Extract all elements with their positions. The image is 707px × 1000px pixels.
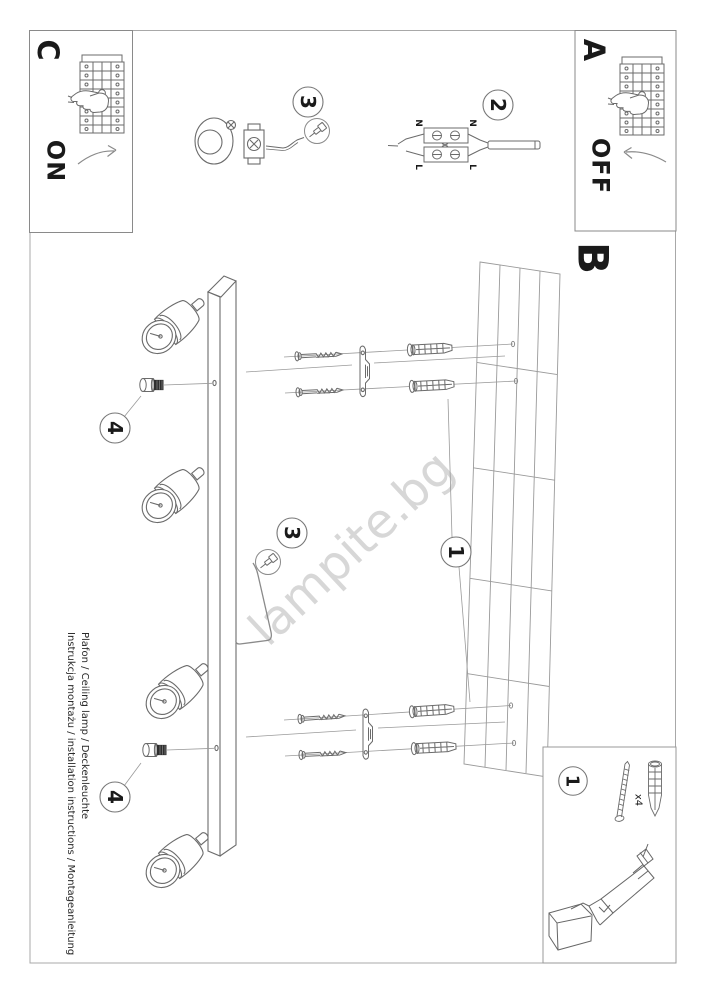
section-c-label: C bbox=[31, 39, 65, 60]
spotlight-drawing bbox=[139, 652, 218, 726]
step3-number: 3 bbox=[280, 526, 304, 540]
step1-number: 1 bbox=[562, 775, 583, 788]
mounting-bracket bbox=[363, 709, 373, 759]
section-c-box: C ON bbox=[30, 31, 133, 233]
power-off-label: OFF bbox=[587, 138, 615, 194]
spotlight-drawing bbox=[135, 287, 214, 361]
section-b-label: B bbox=[568, 242, 617, 274]
terminal-l-right: L bbox=[467, 164, 477, 170]
step1-number: 1 bbox=[444, 545, 468, 559]
step2-number: 2 bbox=[486, 98, 510, 112]
step4-number: 4 bbox=[103, 790, 127, 804]
lamp-bar-figure bbox=[208, 276, 236, 856]
hardware-qty-label: x4 bbox=[633, 794, 644, 806]
manual-drawing: lampite.bg C ON A OFF bbox=[0, 0, 707, 1000]
leader-line bbox=[164, 383, 212, 385]
screwdriver-icon bbox=[256, 550, 281, 575]
wall-plug bbox=[409, 378, 454, 392]
hardware-kit-box: 1 x4 bbox=[543, 747, 676, 963]
section-a-label: A bbox=[577, 39, 611, 62]
step3-clamp-figure bbox=[195, 118, 304, 164]
step2-wiring-figure bbox=[388, 128, 540, 162]
ceiling-panel-figure bbox=[464, 262, 560, 777]
hardware-leader-lines-top bbox=[246, 344, 516, 393]
leader-line bbox=[167, 748, 214, 750]
step4-number: 4 bbox=[103, 421, 127, 435]
footer-instructions-line: Instrukcja montażu / installation instru… bbox=[65, 632, 76, 955]
manual-page: lampite.bg C ON A OFF bbox=[0, 0, 707, 1000]
terminal-l-left: L bbox=[413, 164, 423, 170]
wall-plug bbox=[407, 342, 452, 356]
wall-plug bbox=[411, 740, 456, 754]
leader-line bbox=[124, 763, 141, 786]
footer-product-line: Plafon / Ceiling lamp / Deckenleuchte bbox=[79, 632, 90, 819]
spotlight-drawing bbox=[139, 821, 218, 895]
wall-plug bbox=[409, 703, 454, 718]
screw-cap bbox=[140, 379, 163, 392]
watermark: lampite.bg bbox=[238, 440, 465, 657]
power-on-label: ON bbox=[42, 140, 70, 183]
section-a-box: A OFF bbox=[575, 31, 676, 232]
step3-number: 3 bbox=[296, 95, 320, 109]
screw-cap bbox=[143, 744, 166, 757]
spotlight-drawing bbox=[135, 456, 214, 530]
terminal-n-right: N bbox=[467, 119, 477, 127]
leader-line bbox=[124, 396, 141, 417]
screwdriver-icon bbox=[305, 119, 330, 144]
terminal-n-left: N bbox=[413, 119, 423, 127]
